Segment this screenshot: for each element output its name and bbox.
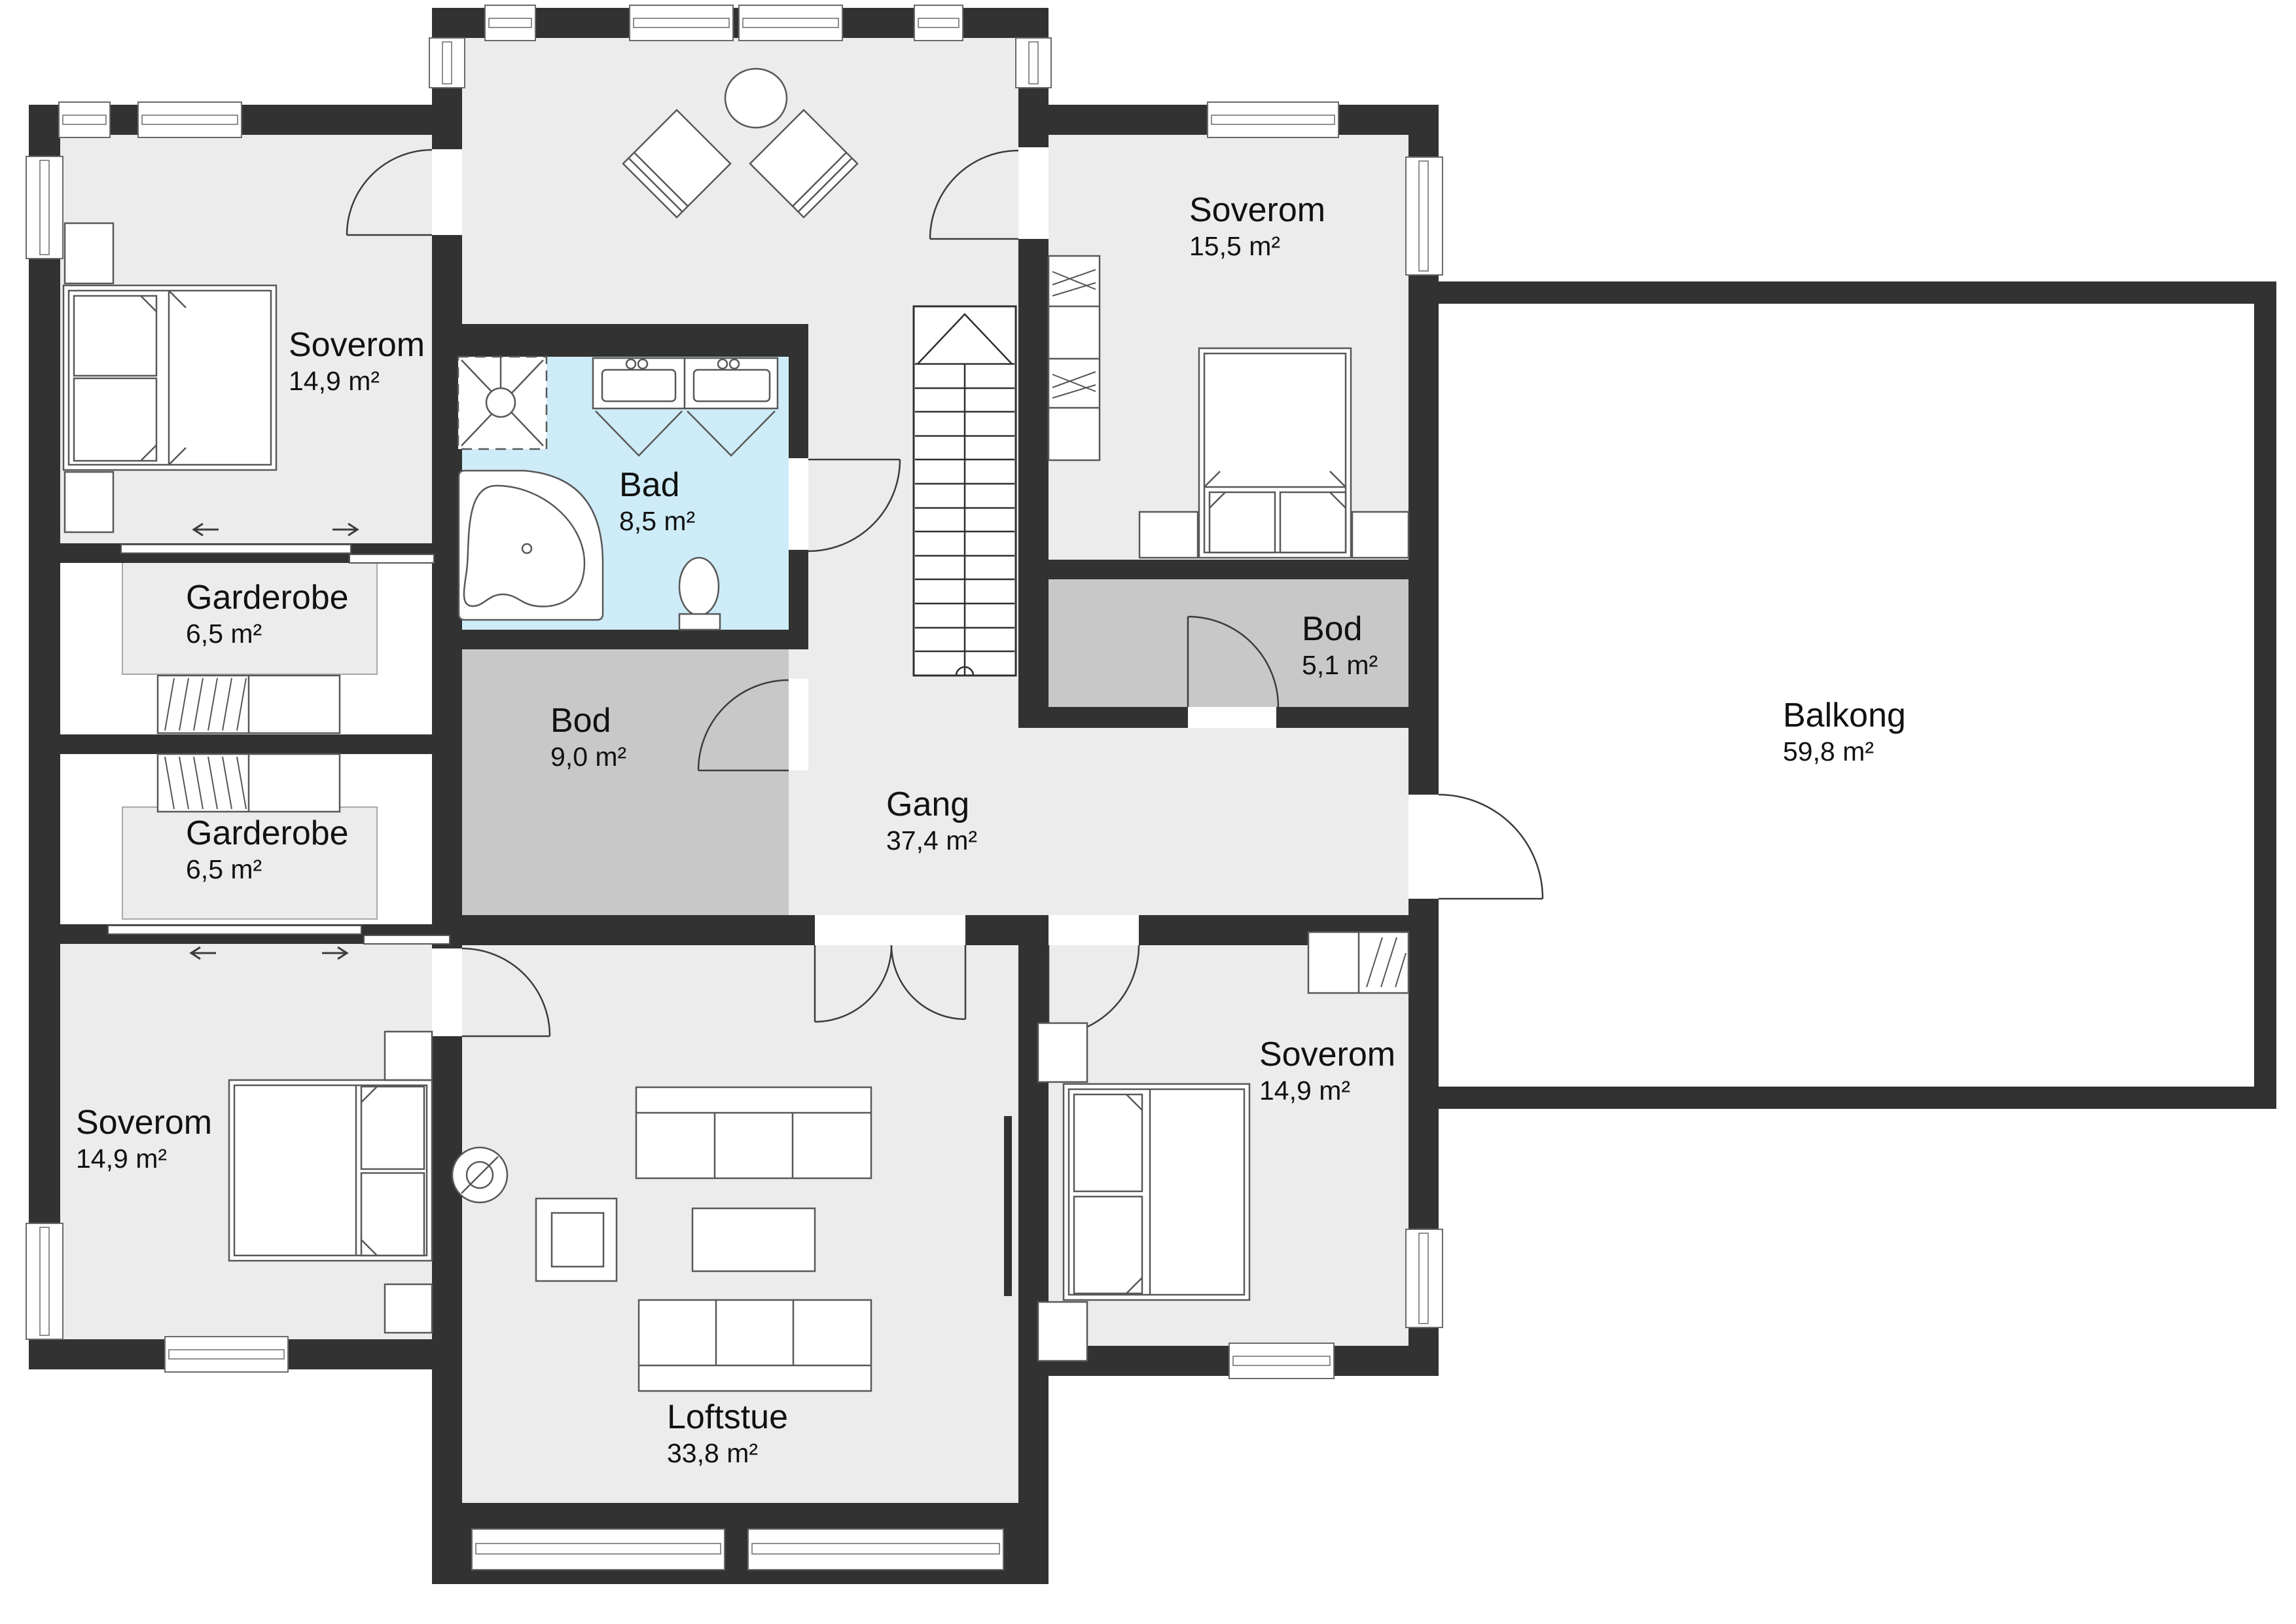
window-icon <box>165 1337 288 1372</box>
room-name: Gang <box>886 785 977 823</box>
window-icon <box>1229 1343 1334 1379</box>
room-label-bad: Bad 8,5 m² <box>619 466 695 538</box>
room-area: 6,5 m² <box>186 852 349 886</box>
room-label-soverom-sw: Soverom 14,9 m² <box>76 1104 212 1176</box>
nightstand-symbol <box>385 1284 432 1333</box>
window-icon <box>485 5 535 41</box>
room-label-garderobe-n: Garderobe 6,5 m² <box>186 579 349 651</box>
floor-bod-9 <box>462 649 789 915</box>
nightstand-symbol <box>65 472 113 532</box>
room-name: Balkong <box>1783 696 1906 734</box>
gang-passage <box>1018 728 1049 915</box>
room-area: 8,5 m² <box>619 504 695 538</box>
room-label-gang: Gang 37,4 m² <box>886 785 977 857</box>
bed-symbol <box>63 285 276 470</box>
window-icon <box>1208 102 1338 137</box>
nightstand-symbol <box>1038 1023 1087 1082</box>
room-area: 14,9 m² <box>289 364 425 398</box>
room-label-garderobe-s: Garderobe 6,5 m² <box>186 814 349 886</box>
room-area: 14,9 m² <box>76 1142 212 1176</box>
window-icon <box>748 1529 1003 1570</box>
window-icon <box>1406 1229 1443 1327</box>
nightstand-symbol <box>1038 1302 1087 1361</box>
window-icon <box>739 5 842 41</box>
nightstand-symbol <box>385 1032 432 1080</box>
room-name: Soverom <box>76 1104 212 1142</box>
room-name: Soverom <box>289 326 425 364</box>
wardrobe-symbol <box>158 754 340 812</box>
window-icon <box>26 156 63 259</box>
coffee-table-symbol <box>692 1208 815 1271</box>
balcony-railing-top <box>1439 281 2276 304</box>
bed-symbol <box>229 1080 432 1261</box>
window-icon <box>1016 38 1051 88</box>
window-icon <box>26 1223 63 1339</box>
room-name: Bad <box>619 466 695 504</box>
bed-symbol <box>1064 1084 1249 1300</box>
window-icon <box>914 5 963 41</box>
nightstand-symbol <box>1139 512 1198 558</box>
balcony-railing-bottom <box>1439 1087 2276 1109</box>
room-name: Loftstue <box>667 1398 788 1436</box>
room-label-soverom-nw: Soverom 14,9 m² <box>289 326 425 398</box>
toilet-symbol <box>679 558 720 630</box>
room-area: 9,0 m² <box>550 740 626 774</box>
sofa-symbol <box>639 1300 871 1391</box>
wardrobe-symbol <box>158 676 340 733</box>
window-icon <box>59 102 110 137</box>
room-area: 5,1 m² <box>1302 648 1378 682</box>
room-name: Garderobe <box>186 814 349 852</box>
room-area: 14,9 m² <box>1259 1074 1395 1108</box>
balcony-railing-right <box>2254 281 2276 1109</box>
room-area: 59,8 m² <box>1783 734 1906 768</box>
room-name: Soverom <box>1259 1036 1395 1074</box>
room-label-soverom-se: Soverom 14,9 m² <box>1259 1036 1395 1108</box>
room-label-bod-9: Bod 9,0 m² <box>550 702 626 774</box>
room-label-bod-5: Bod 5,1 m² <box>1302 610 1378 682</box>
room-name: Bod <box>550 702 626 740</box>
room-area: 6,5 m² <box>186 617 349 651</box>
room-area: 37,4 m² <box>886 823 977 857</box>
bed-symbol <box>1199 348 1351 558</box>
window-icon <box>630 5 733 41</box>
floor-balkong <box>1439 304 2254 1087</box>
room-name: Garderobe <box>186 579 349 617</box>
nightstand-symbol <box>65 223 113 283</box>
armchair-symbol <box>536 1199 617 1281</box>
floor-gang-east <box>1049 728 1408 915</box>
room-area: 15,5 m² <box>1189 229 1325 263</box>
window-icon <box>472 1529 725 1570</box>
shower-symbol <box>458 357 547 449</box>
tv-symbol <box>1004 1116 1012 1296</box>
room-name: Bod <box>1302 610 1378 648</box>
window-icon <box>429 38 465 88</box>
room-label-loftstue: Loftstue 33,8 m² <box>667 1398 788 1470</box>
nightstand-symbol <box>1352 512 1408 558</box>
floor-plan-canvas: Soverom 14,9 m² Bad 8,5 m² Soverom 15,5 … <box>0 0 2296 1624</box>
wardrobe-symbol <box>1049 256 1100 460</box>
room-area: 33,8 m² <box>667 1436 788 1470</box>
window-icon <box>1406 157 1443 275</box>
sofa-symbol <box>636 1087 871 1178</box>
wardrobe-symbol <box>1308 932 1408 993</box>
room-name: Soverom <box>1189 191 1325 229</box>
fireplace-symbol <box>452 1147 507 1202</box>
room-label-balkong: Balkong 59,8 m² <box>1783 696 1906 768</box>
window-icon <box>138 102 242 137</box>
staircase-symbol <box>914 306 1016 676</box>
table-symbol <box>725 69 787 128</box>
room-label-soverom-ne: Soverom 15,5 m² <box>1189 191 1325 263</box>
